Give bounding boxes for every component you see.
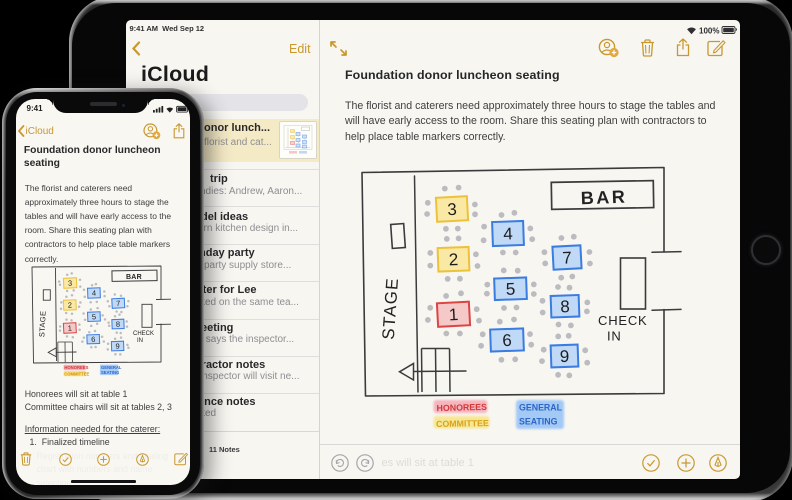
svg-text:COMMITTEE: COMMITTEE [436, 418, 489, 429]
svg-text:BAR: BAR [126, 274, 142, 281]
svg-text:SEATING: SEATING [101, 370, 119, 375]
svg-text:7: 7 [562, 248, 572, 267]
svg-text:GENERAL: GENERAL [519, 403, 563, 413]
svg-text:8: 8 [560, 297, 570, 316]
svg-text:5: 5 [505, 280, 515, 299]
svg-text:6: 6 [91, 335, 95, 344]
svg-text:3: 3 [68, 278, 73, 287]
svg-text:1: 1 [448, 305, 458, 324]
svg-text:1: 1 [68, 323, 73, 332]
svg-text:6: 6 [502, 331, 512, 350]
svg-text:7: 7 [116, 299, 121, 308]
svg-text:STAGE: STAGE [37, 311, 47, 338]
svg-text:2: 2 [68, 301, 72, 310]
svg-text:8: 8 [116, 320, 120, 329]
svg-text:IN: IN [137, 338, 143, 344]
svg-text:SEATING: SEATING [519, 417, 558, 427]
svg-text:HONOREES: HONOREES [436, 402, 487, 413]
svg-text:BAR: BAR [581, 187, 628, 209]
svg-text:CHECK: CHECK [133, 331, 154, 337]
svg-text:IN: IN [607, 329, 622, 344]
svg-text:COMMITTEE: COMMITTEE [64, 371, 89, 376]
svg-text:3: 3 [447, 200, 457, 219]
svg-text:9: 9 [115, 342, 119, 351]
svg-text:HONOREES: HONOREES [64, 365, 88, 370]
svg-text:5: 5 [92, 312, 96, 321]
svg-text:4: 4 [92, 289, 96, 298]
svg-text:STAGE: STAGE [379, 277, 402, 341]
svg-text:9: 9 [559, 347, 569, 366]
svg-text:CHECK: CHECK [598, 313, 648, 328]
svg-text:4: 4 [503, 224, 513, 243]
svg-text:100%: 100% [699, 27, 719, 35]
svg-text:2: 2 [448, 250, 458, 269]
